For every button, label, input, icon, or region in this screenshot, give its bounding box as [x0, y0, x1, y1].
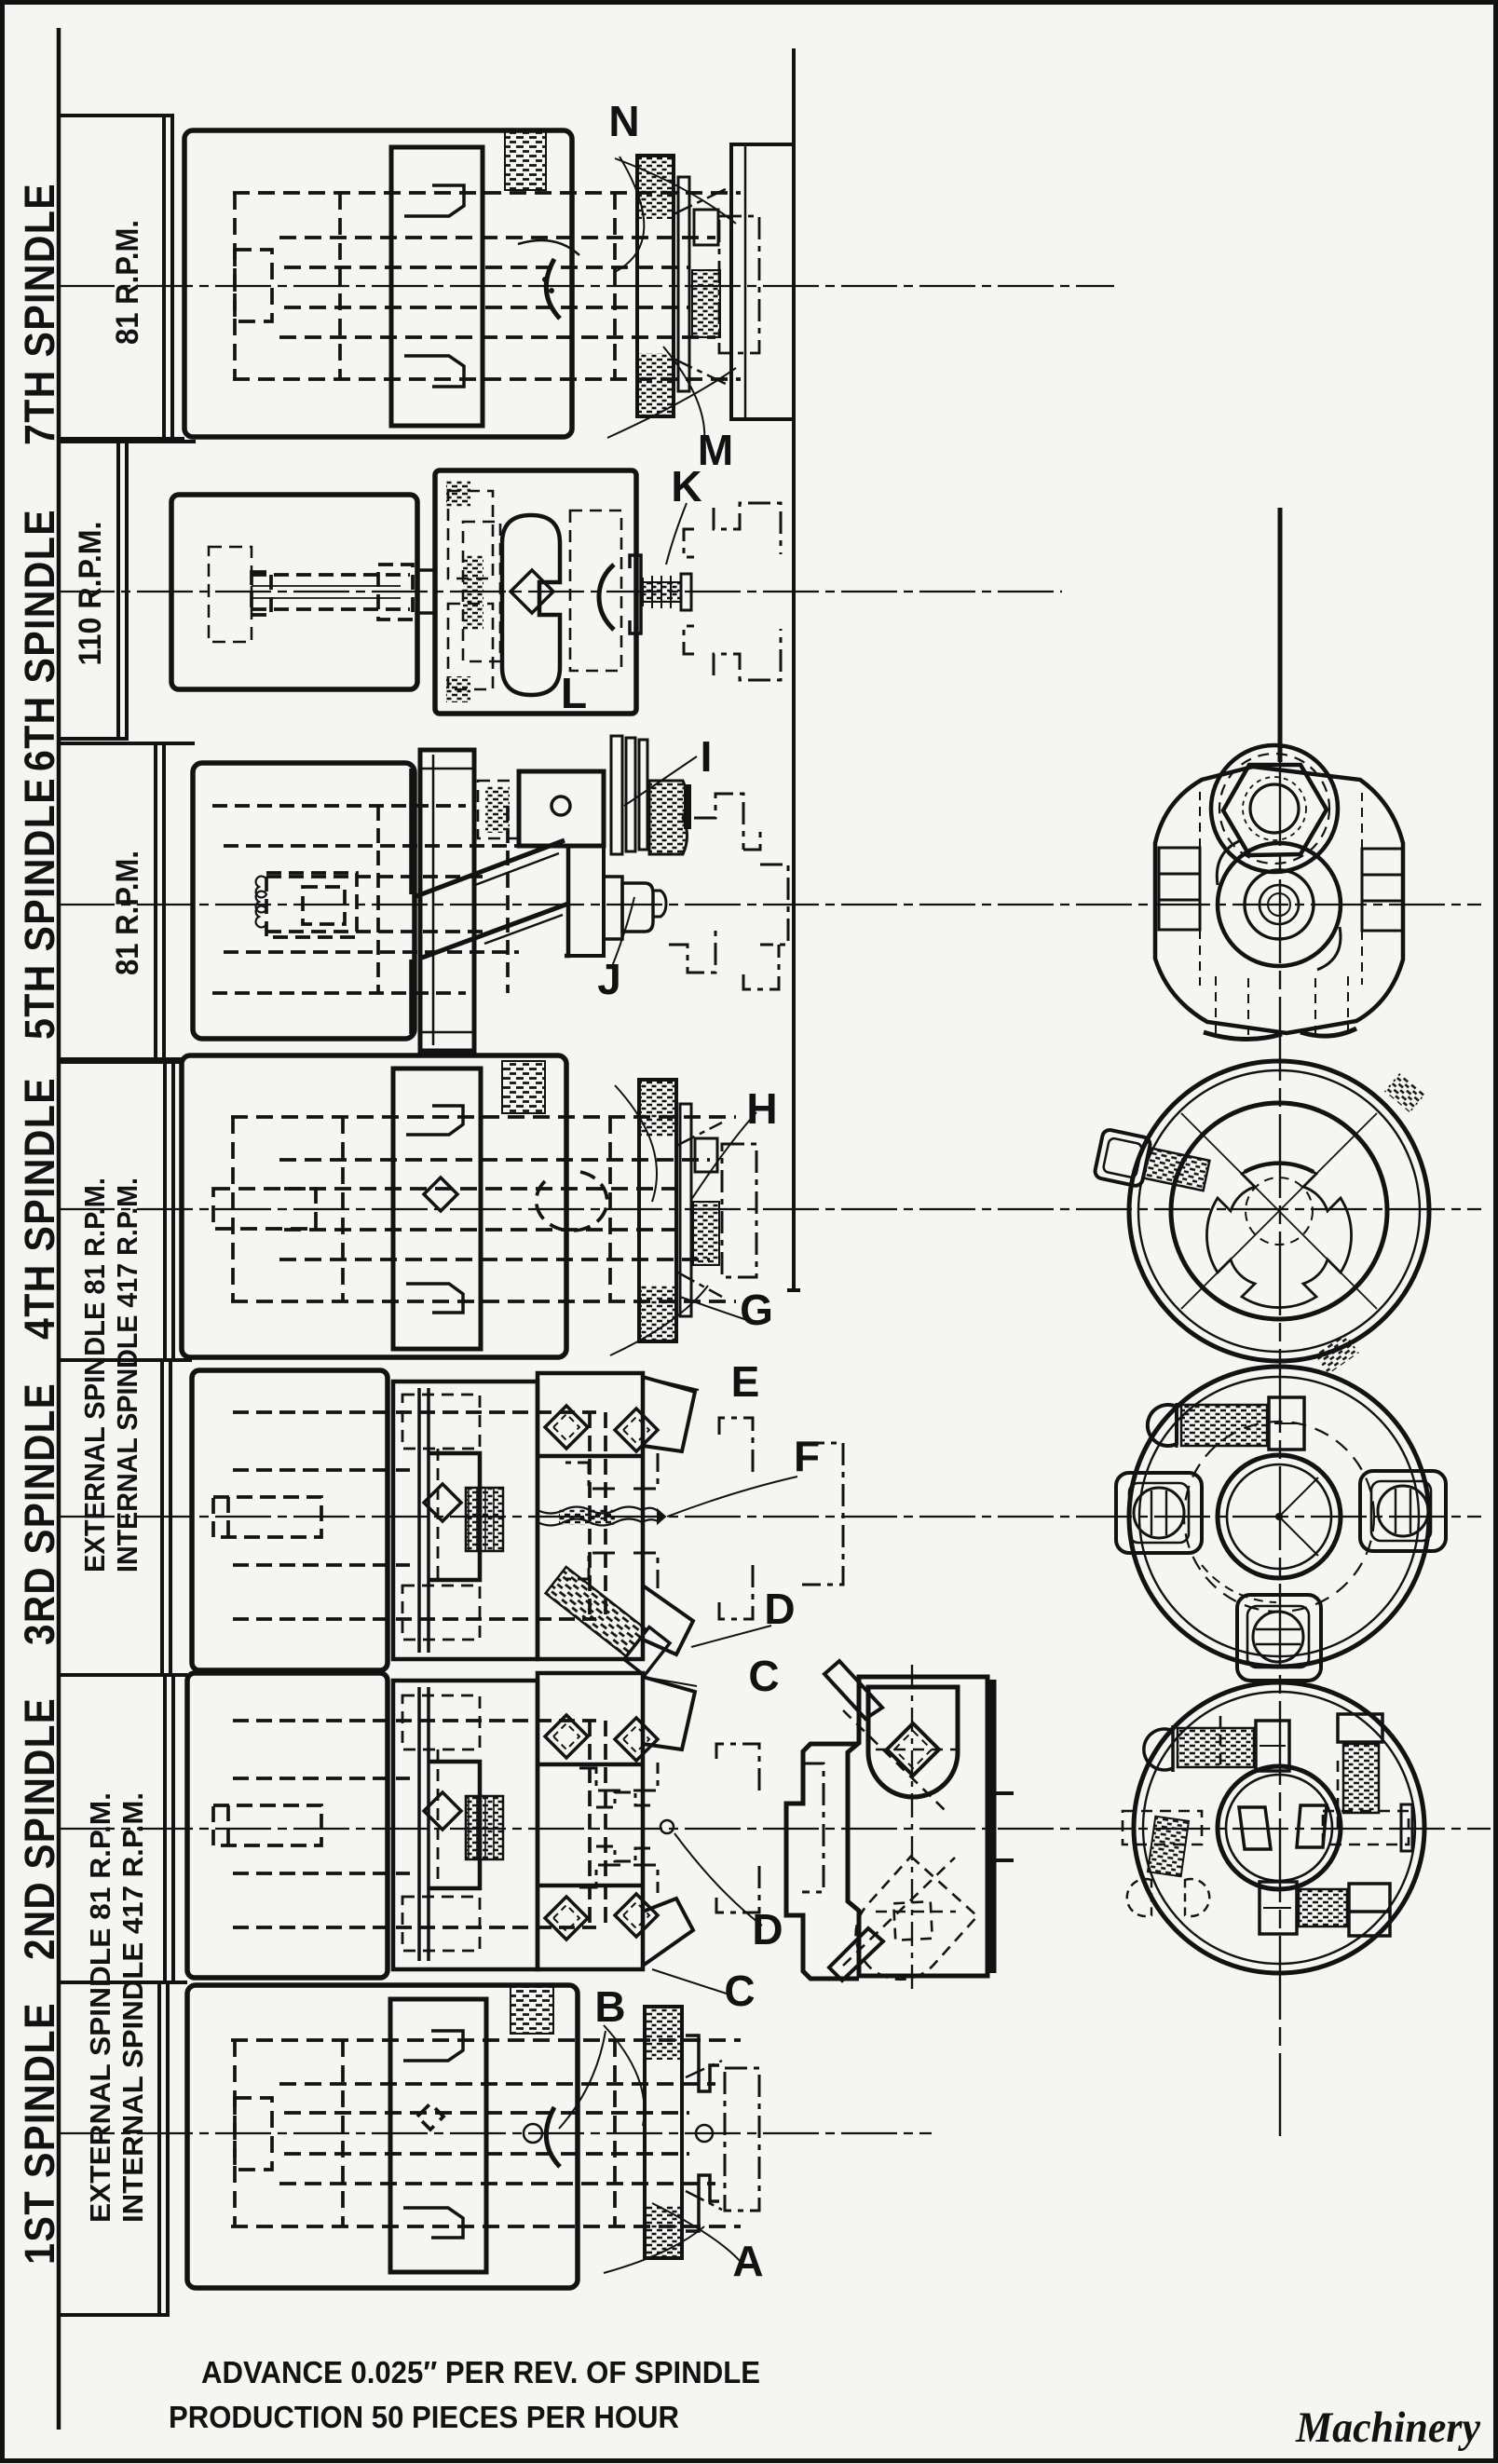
svg-text:G: G	[740, 1286, 773, 1334]
svg-text:C: C	[748, 1652, 779, 1700]
svg-text:E: E	[731, 1357, 760, 1406]
svg-text:81 R.P.M.: 81 R.P.M.	[110, 851, 145, 975]
svg-text:D: D	[764, 1585, 795, 1633]
svg-text:5TH SPINDLE: 5TH SPINDLE	[16, 777, 63, 1040]
svg-text:N: N	[608, 97, 639, 145]
svg-text:L: L	[561, 669, 587, 717]
svg-text:1ST SPINDLE: 1ST SPINDLE	[16, 2002, 63, 2265]
svg-text:3RD SPINDLE: 3RD SPINDLE	[16, 1382, 63, 1645]
svg-text:110 R.P.M.: 110 R.P.M.	[73, 522, 108, 666]
svg-text:EXTERNAL SPINDLE 81 R.P.M.: EXTERNAL SPINDLE 81 R.P.M.	[78, 1178, 111, 1572]
svg-text:H: H	[746, 1084, 777, 1133]
svg-text:2ND SPINDLE: 2ND SPINDLE	[16, 1697, 63, 1960]
svg-text:K: K	[671, 462, 701, 510]
svg-text:PRODUCTION 50 PIECES PER HOUR: PRODUCTION 50 PIECES PER HOUR	[169, 2400, 679, 2434]
svg-text:4TH SPINDLE: 4TH SPINDLE	[16, 1077, 63, 1340]
svg-text:F: F	[794, 1432, 820, 1480]
svg-text:INTERNAL SPINDLE 417 R.P.M.: INTERNAL SPINDLE 417 R.P.M.	[116, 1792, 149, 2223]
svg-text:7TH SPINDLE: 7TH SPINDLE	[16, 183, 63, 445]
svg-text:J: J	[597, 955, 621, 1003]
svg-text:6TH SPINDLE: 6TH SPINDLE	[16, 509, 63, 771]
svg-text:M: M	[698, 426, 733, 474]
svg-text:D: D	[752, 1905, 783, 1954]
svg-text:INTERNAL SPINDLE 417 R.P.M.: INTERNAL SPINDLE 417 R.P.M.	[111, 1178, 143, 1572]
svg-text:EXTERNAL SPINDLE 81 R.P.M.: EXTERNAL SPINDLE 81 R.P.M.	[84, 1792, 116, 2223]
svg-text:C: C	[724, 1967, 755, 2015]
svg-text:I: I	[701, 732, 713, 781]
svg-text:81 R.P.M.: 81 R.P.M.	[110, 220, 145, 345]
svg-text:B: B	[594, 1982, 625, 2031]
svg-text:A: A	[732, 2237, 763, 2285]
svg-text:ADVANCE 0.025″ PER REV. OF SPI: ADVANCE 0.025″ PER REV. OF SPINDLE	[201, 2355, 760, 2389]
svg-text:Machinery: Machinery	[1295, 2403, 1480, 2452]
